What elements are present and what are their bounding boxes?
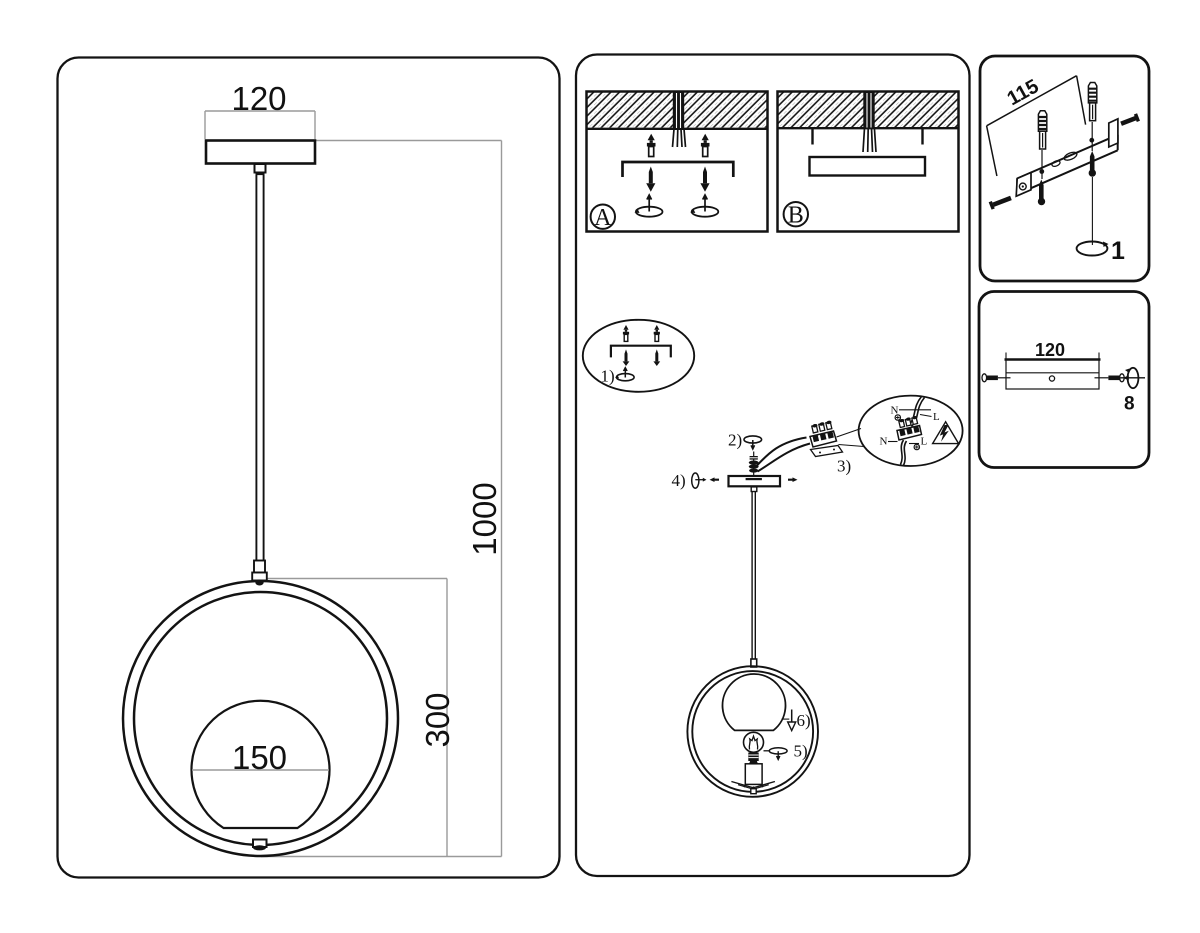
svg-text:2): 2) bbox=[728, 431, 742, 450]
svg-text:B: B bbox=[788, 202, 804, 228]
svg-text:4): 4) bbox=[672, 471, 686, 490]
svg-text:L: L bbox=[933, 411, 940, 423]
svg-text:A: A bbox=[594, 205, 612, 231]
svg-text:3): 3) bbox=[837, 457, 851, 476]
svg-text:1: 1 bbox=[1111, 237, 1125, 265]
svg-text:300: 300 bbox=[419, 692, 456, 747]
svg-text:1000: 1000 bbox=[466, 482, 503, 555]
svg-text:150: 150 bbox=[232, 739, 287, 776]
svg-text:120: 120 bbox=[1035, 340, 1065, 360]
svg-text:8: 8 bbox=[1124, 394, 1135, 415]
svg-text:L: L bbox=[921, 436, 928, 448]
svg-text:5): 5) bbox=[794, 741, 808, 760]
svg-text:1): 1) bbox=[601, 367, 615, 386]
svg-text:6): 6) bbox=[797, 711, 811, 730]
svg-text:N: N bbox=[880, 436, 888, 448]
